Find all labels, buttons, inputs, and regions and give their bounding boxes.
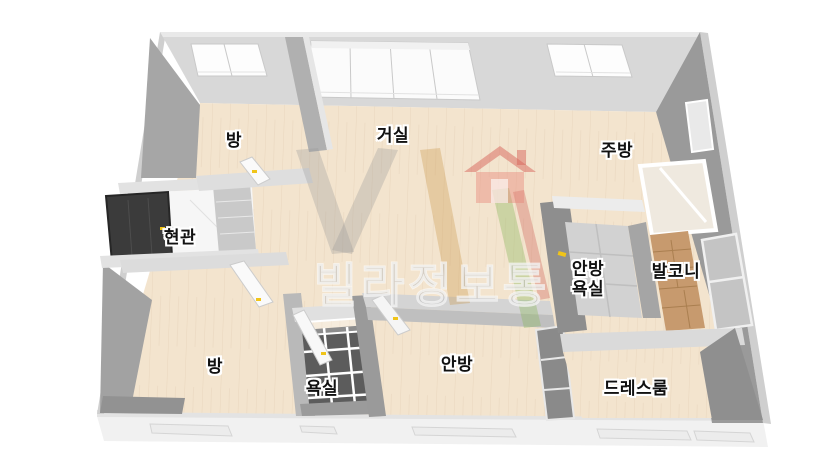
entrance-area: [100, 176, 260, 268]
watermark-text: 빌라정보통: [314, 259, 550, 312]
floor-plan-3d-image: 빌라정보통: [0, 0, 840, 472]
balcony-door-frame: [640, 161, 716, 235]
window-kitchen: [547, 44, 632, 77]
dress-room-area: [560, 328, 763, 420]
door-handle: [393, 317, 398, 320]
entrance-cabinet: [213, 184, 256, 254]
door-handle: [252, 170, 257, 173]
door-handle: [321, 352, 326, 355]
window-east-small: [686, 100, 713, 152]
floor-plan-viewer: 빌라정보통 방 거실 주방 현관 방 욕실 안방 안방 욕실 발코니 드레스룸: [0, 0, 840, 472]
window-living-room: [309, 41, 480, 100]
door-handle: [256, 298, 261, 301]
entrance-door-handle: [160, 227, 165, 230]
window-room-top-left: [191, 44, 267, 76]
